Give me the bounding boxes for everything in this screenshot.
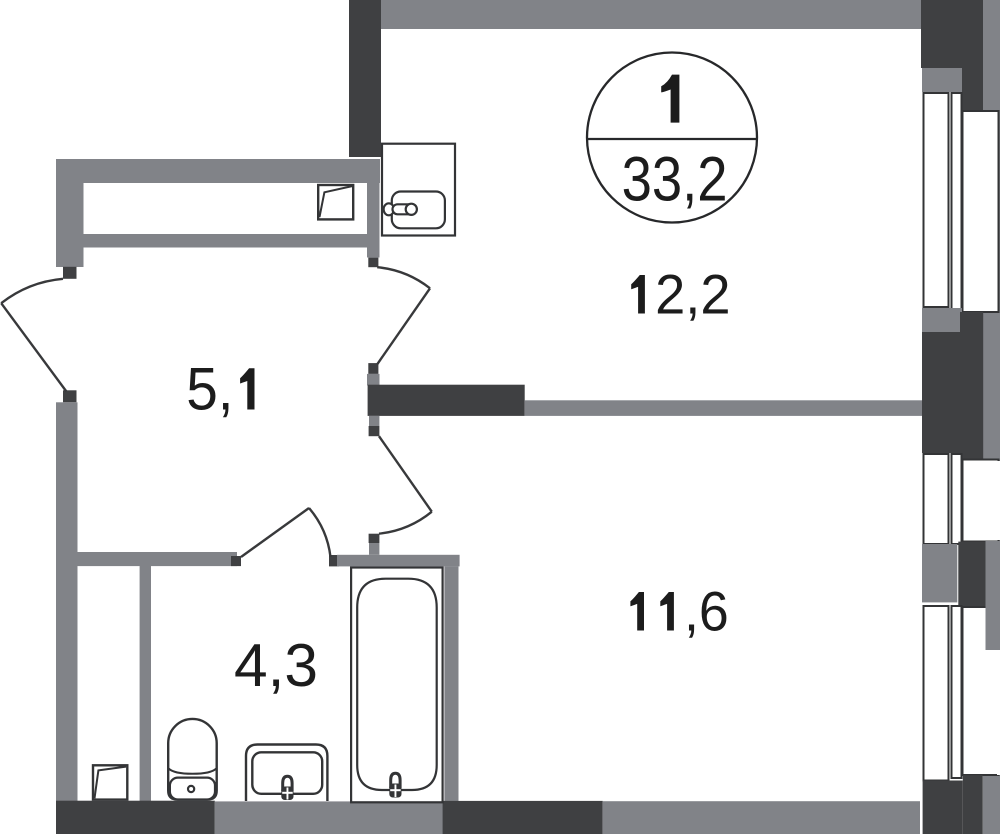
svg-text:33,2: 33,2 (622, 145, 728, 215)
svg-text:2,2: 2,2 (655, 263, 730, 326)
svg-text:,6: ,6 (684, 580, 729, 643)
svg-text:5,: 5, (186, 356, 233, 423)
svg-text:4,3: 4,3 (234, 632, 318, 699)
